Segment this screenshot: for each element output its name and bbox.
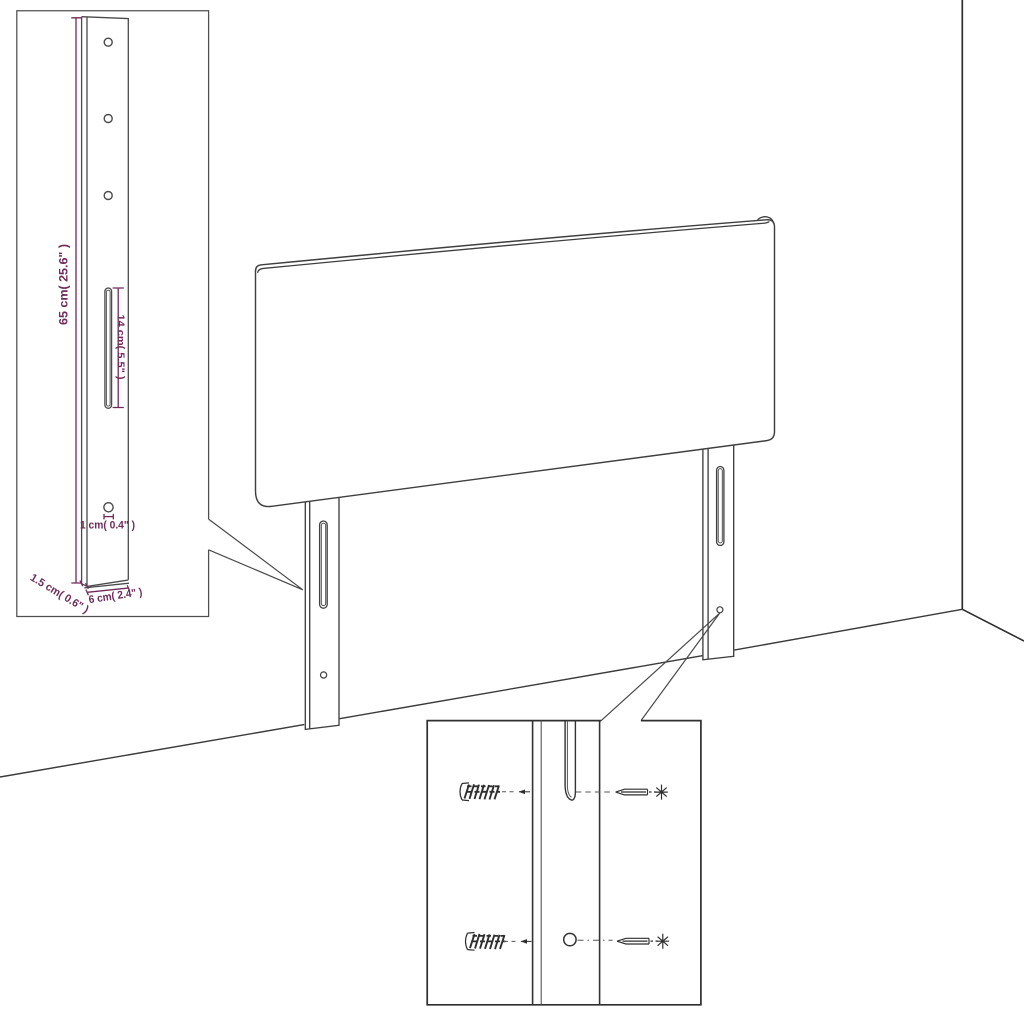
- svg-text:1 cm( 0.4" ): 1 cm( 0.4" ): [80, 520, 135, 532]
- svg-text:14 cm( 5.5" ): 14 cm( 5.5" ): [114, 315, 126, 380]
- svg-text:65 cm( 25.6" ): 65 cm( 25.6" ): [57, 244, 71, 325]
